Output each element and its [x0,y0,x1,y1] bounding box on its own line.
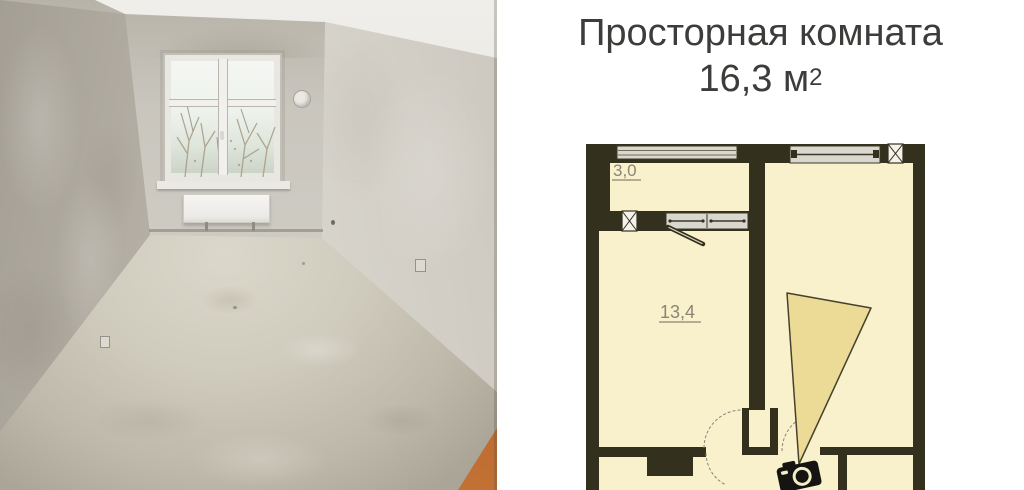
balcony-area-label: 3,0 [613,161,637,180]
balcony-window [617,146,737,159]
floor-plan: 3,0 13,4 [0,0,1024,490]
listing-image: Просторная комната 16,3 м2 [0,0,1024,490]
hatch-column [622,211,637,231]
room-area-label: 13,4 [660,302,695,322]
hatch-column [888,144,903,163]
